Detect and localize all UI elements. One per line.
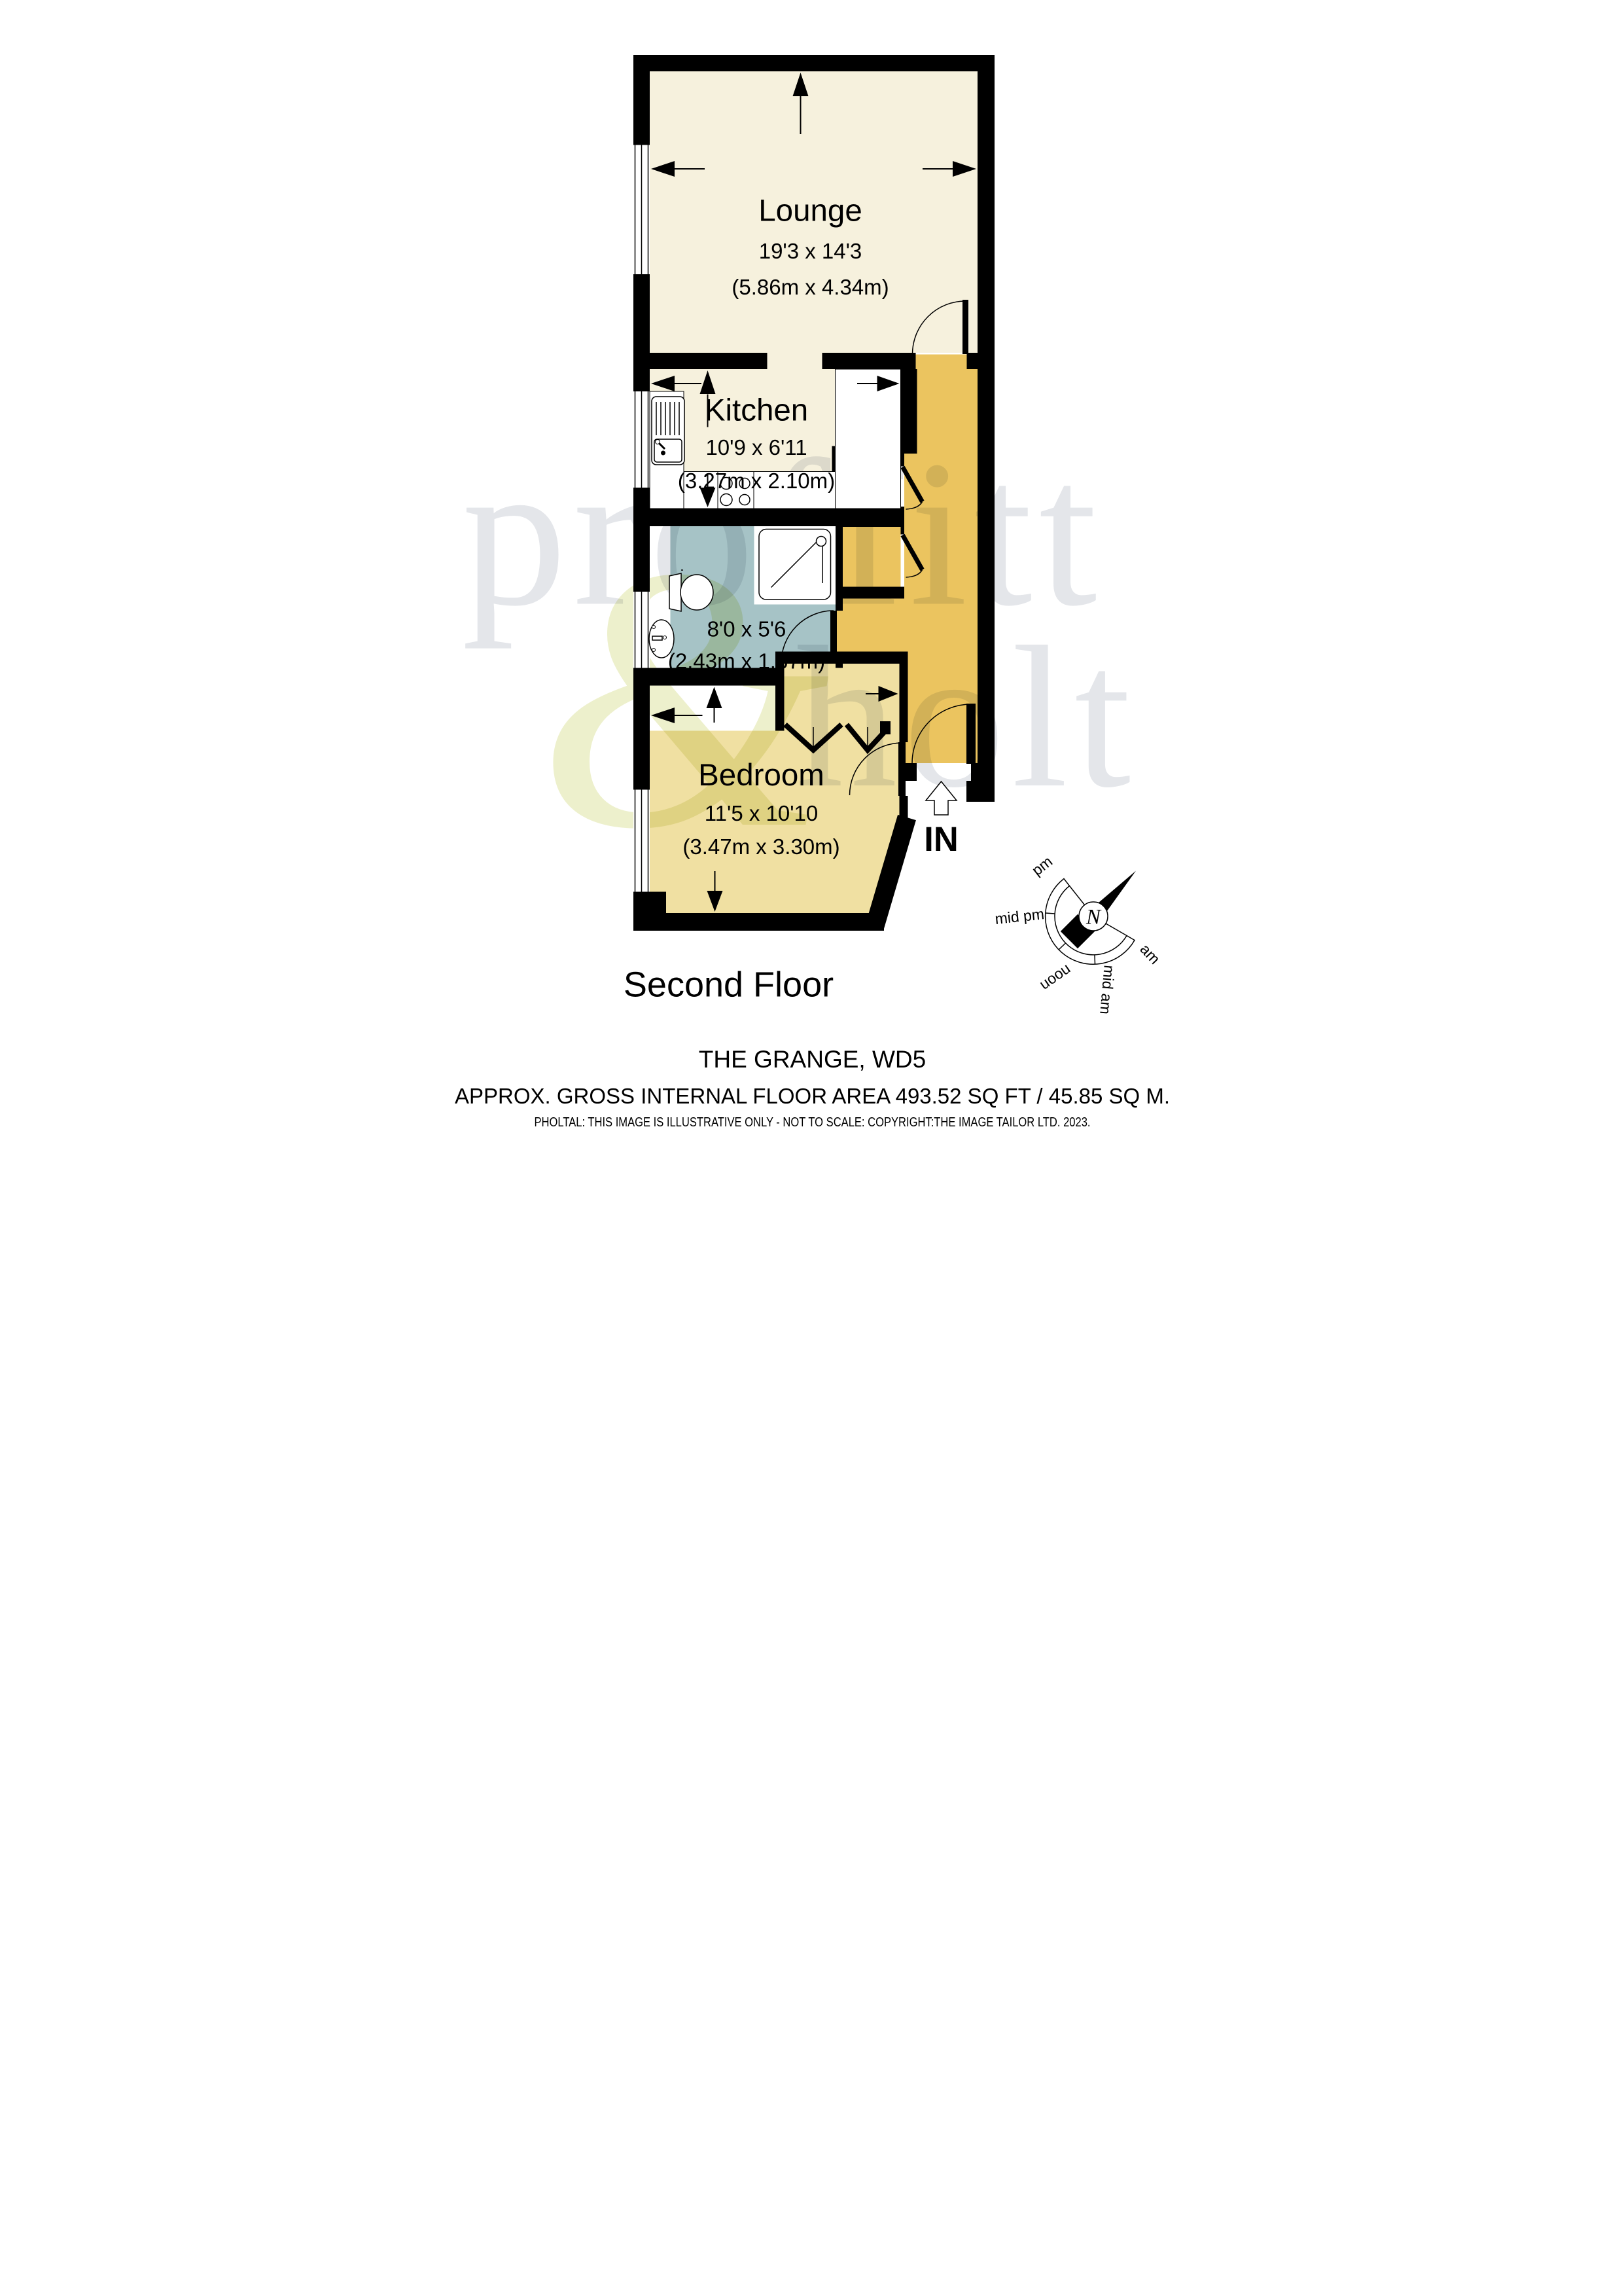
- wall-left-3: [633, 488, 650, 592]
- sink-drain: [661, 451, 665, 456]
- wall-lounge-bottom-mid: [822, 353, 915, 369]
- lounge-kitchen-opening: [767, 353, 822, 369]
- wall-right: [978, 55, 995, 781]
- basin-tap-icon: [652, 636, 662, 640]
- kitchen-counter-right: [835, 369, 900, 509]
- bedroom-size-imperial: 11'5 x 10'10: [704, 801, 817, 825]
- kitchen-sink: [652, 397, 684, 465]
- lounge-name: Lounge: [758, 194, 862, 228]
- wall-left-4: [633, 668, 650, 790]
- floorplan-canvas: proffitt & holt: [406, 0, 1218, 1148]
- property-title: THE GRANGE, WD5: [698, 1046, 925, 1073]
- toilet-bowl: [680, 575, 713, 610]
- wall-kitchen-hall: [900, 369, 917, 454]
- bathroom-size-metric: (2.43m x 1.67m): [667, 649, 824, 673]
- wall-entry-step: [966, 781, 995, 802]
- toilet-cistern: [669, 573, 681, 611]
- bedroom-size-metric: (3.47m x 3.30m): [682, 834, 839, 859]
- wall-lounge-door-stub: [966, 353, 978, 369]
- wall-hall-bottom-right: [971, 763, 995, 781]
- disclaimer-text: PHOLTAL: THIS IMAGE IS ILLUSTRATIVE ONLY…: [534, 1115, 1090, 1130]
- floor-label: Second Floor: [623, 965, 833, 1005]
- wall-cupboard1-stub: [900, 454, 904, 467]
- kitchen-window: [633, 391, 650, 488]
- lounge-size-metric: (5.86m x 4.34m): [732, 275, 889, 299]
- compass-label-pm: pm: [1028, 853, 1055, 879]
- compass-needle-icon: [1098, 871, 1136, 912]
- wall-left-1: [633, 55, 650, 145]
- wall-top: [633, 55, 995, 71]
- wall-bathroom-right-lower: [836, 663, 843, 668]
- floorplan-page: proffitt & holt: [406, 0, 1218, 1148]
- captions: Second Floor THE GRANGE, WD5 APPROX. GRO…: [454, 965, 1169, 1130]
- wall-bedroom-hall-upper: [899, 664, 908, 742]
- bathroom-size-imperial: 8'0 x 5'6: [707, 617, 786, 641]
- kitchen-size-imperial: 10'9 x 6'11: [705, 435, 807, 459]
- wall-cupboard-mid: [832, 507, 904, 527]
- wall-kitchen-bottom: [633, 509, 843, 526]
- bedroom-window: [633, 790, 650, 892]
- wall-cupboard2-bottom: [832, 587, 904, 599]
- lounge-size-imperial: 19'3 x 14'3: [758, 239, 862, 263]
- compass-label-am: am: [1137, 941, 1163, 967]
- kitchen-name: Kitchen: [704, 393, 807, 428]
- wall-bedroom-bottom: [650, 913, 884, 931]
- wall-bathroom-right-upper: [836, 526, 843, 611]
- shower-head-icon: [816, 537, 826, 547]
- entrance-label: IN: [924, 820, 959, 859]
- floor-area-text: APPROX. GROSS INTERNAL FLOOR AREA 493.52…: [454, 1084, 1169, 1108]
- shower: [754, 526, 836, 605]
- compass-label-midam: mid am: [1097, 965, 1118, 1015]
- kitchen-size-metric: (3.27m x 2.10m): [677, 469, 834, 493]
- compass-north: N: [1085, 906, 1101, 929]
- wall-lounge-bottom-left: [633, 353, 768, 369]
- bathroom-window: [633, 592, 650, 668]
- wall-cupboard2-stub: [900, 527, 904, 535]
- wall-left-2: [633, 274, 650, 391]
- bedroom-name: Bedroom: [698, 758, 824, 793]
- bedroom-label: Bedroom 11'5 x 10'10 (3.47m x 3.30m): [682, 758, 839, 859]
- lounge-window: [633, 145, 650, 275]
- compass-label-noon: noon: [1037, 961, 1074, 995]
